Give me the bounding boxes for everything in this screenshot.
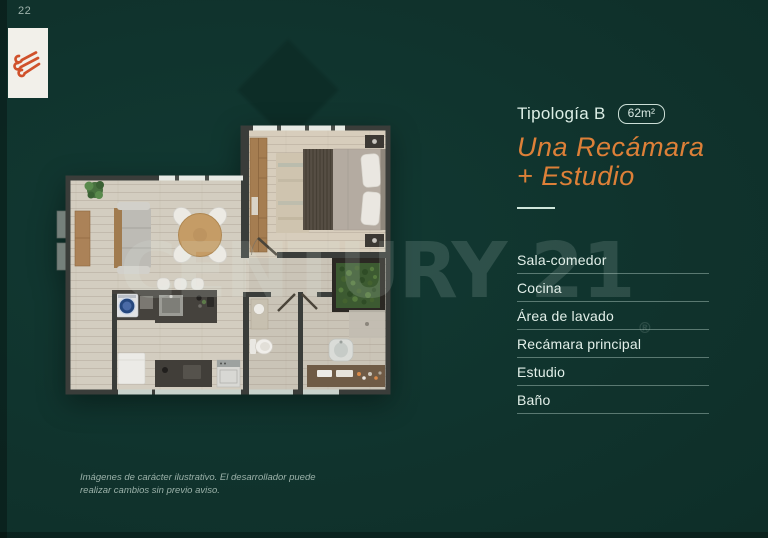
oven <box>217 360 240 387</box>
list-item-bano: Baño <box>517 386 709 414</box>
study-desk <box>118 353 145 384</box>
page-bottom-edge <box>0 532 768 538</box>
list-item-cocina: Cocina <box>517 274 709 302</box>
typology-title: Tipología B <box>517 104 606 124</box>
bed <box>303 149 388 230</box>
sofa <box>114 202 151 274</box>
brand-knot-logo-icon <box>12 44 44 83</box>
info-panel: Tipología B 62m² Una Recámara + Estudio … <box>517 104 709 414</box>
list-item-estudio: Estudio <box>517 358 709 386</box>
unit-type-line1: Una Recámara <box>517 133 709 162</box>
vertical-garden <box>332 252 385 312</box>
laundry-washer <box>112 290 155 320</box>
unit-type-line2: + Estudio <box>517 162 709 191</box>
wardrobe <box>250 138 267 252</box>
brand-logo-box <box>8 28 48 98</box>
console-shelf <box>75 211 90 266</box>
title-row: Tipología B 62m² <box>517 104 709 124</box>
list-item-area-de-lavado: Área de lavado <box>517 302 709 330</box>
floor-plan <box>55 113 400 403</box>
room-list: Sala-comedor Cocina Área de lavado Recám… <box>517 246 709 414</box>
list-item-sala-comedor: Sala-comedor <box>517 246 709 274</box>
accent-rule <box>517 207 555 209</box>
area-badge: 62m² <box>618 104 665 124</box>
list-item-recamara-principal: Recámara principal <box>517 330 709 358</box>
lower-counter <box>155 360 212 387</box>
page-left-edge <box>0 0 7 538</box>
disclaimer-text: Imágenes de carácter ilustrativo. El des… <box>80 471 318 498</box>
unit-type-subtitle: Una Recámara + Estudio <box>517 133 709 191</box>
page-number: 22 <box>18 5 31 17</box>
